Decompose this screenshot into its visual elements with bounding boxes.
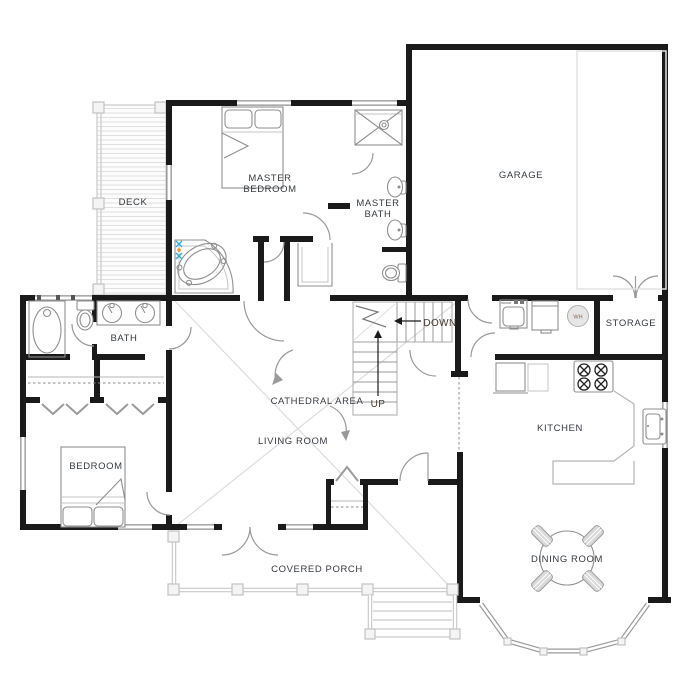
- washer-icon: [500, 300, 527, 329]
- stairs-down-label: DOWN: [423, 318, 456, 329]
- room-label-master-bath-1: MASTER: [356, 198, 399, 209]
- door-arc: [468, 299, 492, 323]
- room-label-master-bedroom-2: BEDROOM: [243, 184, 296, 195]
- porch-post: [168, 531, 179, 542]
- door-arc: [303, 213, 330, 240]
- down-arrow-icon: [394, 317, 421, 325]
- room-label-bedroom: BEDROOM: [69, 461, 122, 472]
- bathtub-icon: [29, 301, 65, 357]
- kitchen-sink-icon: [643, 409, 666, 444]
- room-label-covered-porch: COVERED PORCH: [271, 564, 363, 575]
- ceiling-arrow-icon: [272, 373, 283, 385]
- sink-icon: [388, 220, 407, 240]
- garage-slab: [577, 51, 666, 289]
- porch-post: [232, 584, 243, 595]
- sink-icon: [103, 303, 122, 322]
- covered-porch-structure: [168, 531, 460, 639]
- room-label-cathedral-area: CATHEDRAL AREA: [271, 396, 364, 407]
- door-arc: [352, 153, 373, 174]
- deck-post: [155, 102, 166, 113]
- sink-icon: [136, 303, 155, 322]
- dryer-icon: [532, 301, 558, 333]
- window: [35, 295, 92, 300]
- stove-icon: [574, 361, 613, 392]
- door-arc: [244, 301, 284, 341]
- porch-post: [447, 584, 458, 595]
- bifold-door-icon: [42, 404, 154, 414]
- ceiling-arrow-icon: [341, 430, 350, 441]
- double-door-porch: [222, 527, 278, 555]
- deck-post: [93, 284, 104, 295]
- shower-icon: [355, 110, 402, 145]
- master-closet: [298, 243, 332, 286]
- room-label-deck: DECK: [119, 197, 148, 208]
- porch-steps: [365, 595, 460, 639]
- toilet-icon: [77, 301, 94, 330]
- sink-icon: [388, 177, 407, 197]
- door-arc: [471, 333, 495, 357]
- corner-bathtub-icon: [170, 235, 233, 293]
- toilet-icon: [383, 264, 407, 282]
- vanity-sinks: [97, 301, 160, 325]
- water-heater-icon: WH: [568, 306, 589, 327]
- front-door: [400, 453, 428, 481]
- porch-post: [297, 584, 308, 595]
- room-label-bath: BATH: [110, 333, 137, 344]
- room-label-kitchen: KITCHEN: [537, 423, 583, 434]
- room-label-living-room: LIVING ROOM: [258, 436, 328, 447]
- floor-plan: WH: [0, 0, 700, 700]
- deck-post: [93, 198, 104, 209]
- room-label-storage: STORAGE: [606, 318, 656, 329]
- porch-post: [362, 584, 373, 595]
- porch-post: [450, 629, 460, 639]
- deck-post: [93, 102, 104, 113]
- room-label-master-bedroom-1: MASTER: [248, 173, 291, 184]
- stairs-up-label: UP: [371, 399, 386, 410]
- front-closet: [331, 467, 363, 507]
- door-arc: [147, 492, 170, 515]
- porch-post: [168, 584, 179, 595]
- bay-window: [481, 604, 648, 655]
- cathedral-ceiling-lines: [174, 300, 459, 596]
- door-arc: [264, 242, 284, 262]
- room-label-dining-room: DINING ROOM: [531, 554, 603, 565]
- room-label-master-bath-2: BATH: [364, 209, 391, 220]
- porch-post: [365, 629, 375, 639]
- refrigerator-icon: [493, 363, 528, 393]
- room-label-garage: GARAGE: [499, 170, 543, 181]
- floor-plan-drawing: WH: [0, 0, 700, 700]
- bed-icon: [61, 447, 125, 527]
- water-heater-label: WH: [573, 315, 582, 321]
- door-arc: [169, 327, 191, 349]
- door-arc: [410, 350, 436, 376]
- garage-double-door: [613, 276, 658, 298]
